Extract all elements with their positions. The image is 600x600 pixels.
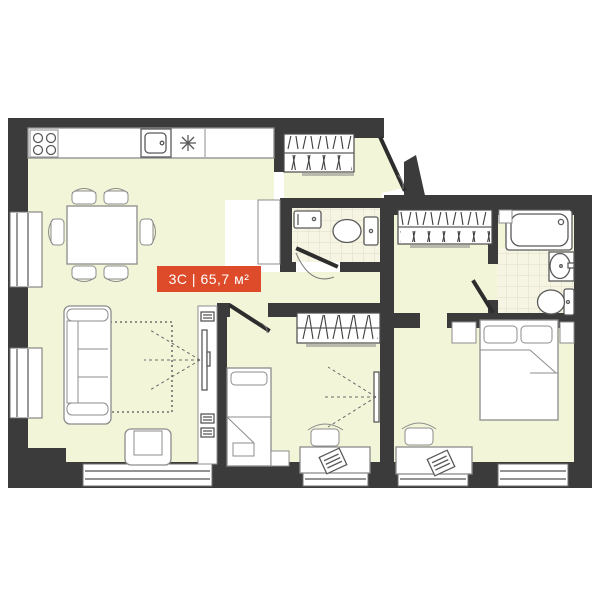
tv-icon xyxy=(202,330,207,390)
desk-chair xyxy=(405,428,433,445)
bath-toilet-icon xyxy=(538,289,575,315)
wall-wc-top xyxy=(280,198,382,208)
kitchen xyxy=(28,128,274,158)
hall-wardrobe xyxy=(284,134,354,176)
wall-right xyxy=(574,195,592,488)
sofa xyxy=(64,306,111,424)
nightstand-right xyxy=(560,322,574,343)
floor-plan xyxy=(0,0,600,600)
stove-icon xyxy=(30,130,58,157)
armchair xyxy=(125,429,171,465)
floor-plan-page: 3С | 65,7 м² xyxy=(0,0,600,600)
bedroom-middle-wardrobe xyxy=(297,313,380,347)
wc-toilet-icon xyxy=(333,217,378,245)
window-bottom-master-2 xyxy=(498,464,568,486)
kitchen-sink-icon xyxy=(141,129,171,157)
wall-central-vertical xyxy=(380,198,394,488)
window-left-1 xyxy=(10,212,42,287)
wall-living-bedroom xyxy=(217,303,227,462)
wall-wc-bottom-left xyxy=(280,262,296,272)
double-bed xyxy=(480,320,558,420)
dining-table xyxy=(67,206,137,264)
window-bottom-living xyxy=(83,464,212,486)
bath-sink-icon xyxy=(549,252,574,281)
unit-area-label: 3С | 65,7 м² xyxy=(157,266,261,292)
corridor-wardrobe xyxy=(398,210,492,248)
wall-wc-left xyxy=(280,198,292,264)
single-bed xyxy=(227,368,271,466)
corridor-right xyxy=(398,210,492,248)
window-left-2 xyxy=(10,348,42,418)
wall-entry-chamfer xyxy=(404,155,426,200)
wall-wc-bottom-right xyxy=(340,262,382,272)
wall-master-top-left xyxy=(394,313,420,328)
wall-left xyxy=(8,118,28,488)
bathtub-icon xyxy=(506,210,572,250)
hall-cabinet xyxy=(258,200,280,264)
desk-chair xyxy=(311,429,339,446)
wall-bottom-left-step xyxy=(8,448,66,488)
nightstand xyxy=(271,451,289,466)
nightstand-left xyxy=(452,322,476,343)
bath-shelf xyxy=(499,210,512,223)
wc-sink-icon xyxy=(294,211,321,228)
